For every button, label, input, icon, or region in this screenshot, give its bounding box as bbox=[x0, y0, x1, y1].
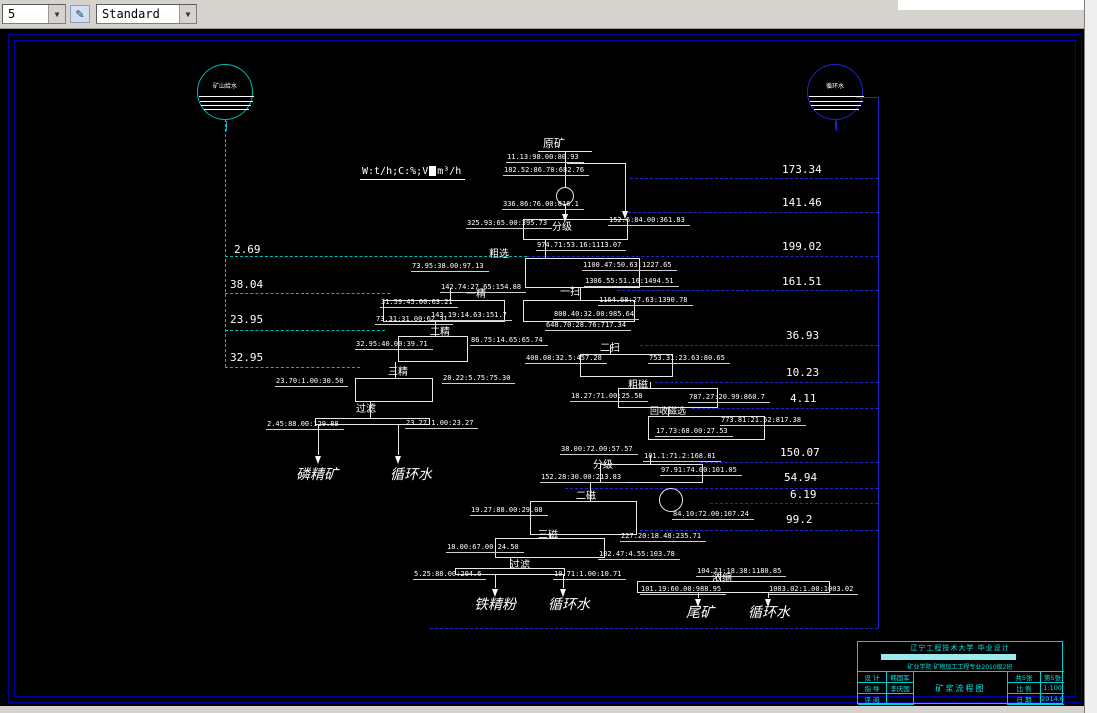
stream-annotation: 1306.55:51.16:1494.51 bbox=[584, 277, 679, 287]
water-flow-value: 23.95 bbox=[230, 314, 263, 326]
flow-line bbox=[640, 530, 878, 531]
product-label: 磷精矿 bbox=[296, 468, 338, 483]
flow-line bbox=[225, 256, 527, 257]
flow-line bbox=[710, 503, 878, 504]
stream-annotation: 73.95:38.00:97.13 bbox=[411, 262, 489, 272]
tb-value-scale: 1:100 bbox=[1041, 683, 1064, 694]
stream-annotation: 787.27:20.99:860.7 bbox=[688, 393, 770, 403]
stream-annotation: 18.27:71.00:25.58 bbox=[570, 392, 648, 402]
stream-annotation: 97.91:74.00:101.05 bbox=[660, 466, 742, 476]
water-tank: 矿山给水 bbox=[197, 64, 253, 120]
title-block: 辽宁工程技术大学 毕业设计 矿业学院 矿物加工工程专业2010级2班 设 计 韩… bbox=[857, 641, 1063, 704]
stream-annotation: 11.13:98.00:80.93 bbox=[506, 153, 584, 163]
product-label: 铁精粉 bbox=[474, 598, 516, 613]
water-flow-value: 199.02 bbox=[782, 241, 822, 253]
stream-annotation: 974.71:53.16:1113.07 bbox=[536, 241, 626, 251]
legend-prefix: W:t/h;C:%;V bbox=[362, 166, 428, 177]
water-tank: 循环水 bbox=[807, 64, 863, 120]
flow-line bbox=[655, 382, 878, 383]
product-label: 循环水 bbox=[390, 468, 432, 483]
equipment-label: 二扫 bbox=[600, 343, 620, 354]
stream-annotation: 23.70:1.00:30.50 bbox=[275, 377, 348, 387]
stream-annotation: 101.19:60.00:988.95 bbox=[640, 585, 726, 595]
stream-annotation: 17.73:68.00:27.53 bbox=[655, 427, 733, 437]
flow-line bbox=[225, 330, 385, 331]
flow-arrow-icon bbox=[492, 589, 498, 597]
flowsheet-diagram: 矿山给水循环水11.13:98.00:80.93182.52:86.70:682… bbox=[0, 0, 1084, 713]
flow-line bbox=[630, 178, 878, 179]
water-flow-value: 4.11 bbox=[790, 393, 817, 405]
equipment-label: 粗磁 bbox=[628, 380, 648, 391]
flow-line bbox=[640, 345, 878, 346]
status-strip bbox=[0, 706, 1084, 713]
equipment-label: 一扫 bbox=[560, 287, 580, 298]
equipment-label: 一精 bbox=[466, 289, 486, 300]
tank-water-line bbox=[809, 96, 864, 97]
stream-annotation: 143.19:14.63:151.7 bbox=[430, 311, 512, 321]
tank-water-line bbox=[200, 101, 253, 102]
water-flow-value: 141.46 bbox=[782, 197, 822, 209]
title-block-department: 矿业学院 矿物加工工程专业2010级2班 bbox=[858, 662, 1062, 671]
flow-line bbox=[700, 462, 878, 463]
stream-annotation: 336.86:76.00:816.1 bbox=[502, 200, 584, 210]
equipment-box bbox=[355, 378, 433, 402]
stream-annotation: 1003.02:1.00:1003.02 bbox=[768, 585, 858, 595]
tb-value-design: 韩国军 bbox=[887, 672, 914, 683]
tank-water-line bbox=[811, 105, 861, 106]
flow-line bbox=[565, 488, 878, 489]
equipment-label: 二磁 bbox=[576, 491, 596, 502]
stream-annotation: 408.08:32.5:457.28 bbox=[525, 354, 607, 364]
tb-label-date: 日 期 bbox=[1008, 694, 1041, 705]
water-flow-value: 150.07 bbox=[780, 447, 820, 459]
stream-annotation: 84.10:72.00:107.24 bbox=[672, 510, 754, 520]
flow-line bbox=[878, 97, 879, 628]
stream-annotation: 1164.68:27.63:1390.78 bbox=[598, 296, 693, 306]
title-block-highlight-bar bbox=[881, 654, 1016, 660]
equipment-label: 过滤 bbox=[356, 404, 376, 415]
stream-annotation: 38.00:72.00:57.57 bbox=[560, 445, 638, 455]
water-flow-value: 6.19 bbox=[790, 489, 817, 501]
flow-arrow-icon bbox=[562, 214, 568, 222]
equipment-label: 三磁 bbox=[538, 530, 558, 541]
tb-label-review: 评 阅 bbox=[858, 694, 887, 705]
tb-label-advisor: 指 导 bbox=[858, 683, 887, 694]
flow-line bbox=[225, 293, 390, 294]
stream-annotation: 152.28:30.00:213.83 bbox=[540, 473, 626, 483]
stream-annotation: 31.59:45.00:63.21 bbox=[380, 298, 458, 308]
water-flow-value: 10.23 bbox=[786, 367, 819, 379]
equipment-label: 分级 bbox=[593, 460, 613, 471]
equipment-label: 原矿 bbox=[543, 138, 565, 149]
product-label: 循环水 bbox=[748, 606, 790, 621]
title-block-university: 辽宁工程技术大学 毕业设计 bbox=[858, 643, 1062, 653]
flow-line bbox=[567, 163, 625, 164]
flow-line bbox=[617, 290, 878, 291]
stream-annotation: 773.81:21.52:817.38 bbox=[720, 416, 806, 426]
pump-circle bbox=[659, 488, 683, 512]
equipment-label: 回收磁选 bbox=[650, 407, 686, 418]
drawing-canvas[interactable]: 矿山给水循环水11.13:98.00:80.93182.52:86.70:682… bbox=[0, 29, 1084, 706]
flow-line bbox=[527, 256, 878, 257]
title-block-table: 设 计 韩国军 指 导 李庆国 评 阅 矿浆流程图 共5张 第5张 比 例 1:… bbox=[858, 671, 1064, 705]
tb-value-date: 2014.6 bbox=[1041, 694, 1064, 705]
tb-sheets-total: 共5张 bbox=[1008, 672, 1041, 683]
drawing-title: 矿浆流程图 bbox=[914, 672, 1008, 705]
equipment-label: 浓缩 bbox=[712, 573, 732, 584]
tank-water-line bbox=[814, 109, 859, 110]
equipment-label: 过滤 bbox=[510, 560, 530, 571]
water-flow-value: 36.93 bbox=[786, 330, 819, 342]
legend-suffix: m³/h bbox=[437, 166, 461, 177]
water-flow-value: 32.95 bbox=[230, 352, 263, 364]
flow-line bbox=[225, 367, 360, 368]
product-label: 循环水 bbox=[548, 598, 590, 613]
stream-annotation: 28.22:5.75:75.30 bbox=[442, 374, 515, 384]
equipment-label: 粗选 bbox=[489, 249, 509, 260]
tank-label: 循环水 bbox=[808, 81, 862, 90]
equipment-label: 分级 bbox=[552, 222, 572, 233]
water-flow-value: 173.34 bbox=[782, 164, 822, 176]
stream-annotation: 104.21:18.38:1180.85 bbox=[696, 567, 786, 577]
stream-annotation: 325.93:65.00:395.73 bbox=[466, 219, 552, 229]
stream-annotation: 19.27:88.00:29.08 bbox=[470, 506, 548, 516]
product-label: 尾矿 bbox=[686, 606, 714, 621]
stream-annotation: 1100.47:50.63:1227.65 bbox=[582, 261, 677, 271]
stream-annotation: 808.40:32.00:985.64 bbox=[553, 310, 639, 320]
stream-annotation: 32.95:40.00:39.71 bbox=[355, 340, 433, 350]
stream-annotation: 227.20:18.48:235.71 bbox=[620, 532, 706, 542]
tb-sheet-number: 第5张 bbox=[1041, 672, 1064, 683]
water-flow-value: 99.2 bbox=[786, 514, 813, 526]
flow-arrow-icon bbox=[315, 456, 321, 464]
stream-annotation: 753.31:23.63:80.65 bbox=[648, 354, 730, 364]
water-flow-value: 38.04 bbox=[230, 279, 263, 291]
stream-annotation: 101.1:71.2:168.81 bbox=[643, 452, 721, 462]
tank-stem bbox=[836, 121, 837, 131]
water-flow-value: 161.51 bbox=[782, 276, 822, 288]
water-flow-value: 54.94 bbox=[784, 472, 817, 484]
tank-water-line bbox=[201, 105, 251, 106]
equipment-label: 三精 bbox=[388, 367, 408, 378]
tb-value-advisor: 李庆国 bbox=[887, 683, 914, 694]
stream-annotation: 5.25:88.00:204.6 bbox=[413, 570, 486, 580]
stream-annotation: 2.45:88.00:129.88 bbox=[266, 420, 344, 430]
tb-label-scale: 比 例 bbox=[1008, 683, 1041, 694]
flow-line bbox=[692, 408, 878, 409]
tank-stem bbox=[226, 121, 227, 131]
tb-value-review bbox=[887, 694, 914, 705]
flow-line bbox=[628, 212, 878, 213]
stream-annotation: 10.71:1.00:10.71 bbox=[553, 570, 626, 580]
flow-line bbox=[625, 163, 626, 212]
flow-line bbox=[580, 288, 581, 300]
tank-label: 矿山给水 bbox=[198, 81, 252, 90]
stream-annotation: 86.75:14.65:65.74 bbox=[470, 336, 548, 346]
water-flow-value: 2.69 bbox=[234, 244, 261, 256]
equipment-label: 二精 bbox=[430, 327, 450, 338]
tank-water-line bbox=[199, 96, 254, 97]
tank-water-line bbox=[204, 109, 249, 110]
flow-line bbox=[398, 425, 399, 455]
tank-water-line bbox=[810, 101, 863, 102]
text-cursor bbox=[429, 166, 436, 176]
stream-annotation: 23.27:1.00:23.27 bbox=[405, 419, 478, 429]
flow-arrow-icon bbox=[395, 456, 401, 464]
stream-annotation: 152.6:84.00:361.83 bbox=[608, 216, 690, 226]
units-legend: W:t/h;C:%;Vm³/h bbox=[360, 166, 465, 180]
stream-annotation: 182.52:86.70:682.76 bbox=[503, 166, 589, 176]
stream-annotation: 648.70:28.76:717.34 bbox=[545, 321, 631, 331]
flow-arrow-icon bbox=[560, 589, 566, 597]
tb-label-design: 设 计 bbox=[858, 672, 887, 683]
flow-line bbox=[495, 575, 496, 588]
right-scrollbar-strip[interactable] bbox=[1084, 0, 1097, 713]
flow-line bbox=[430, 628, 878, 629]
stream-annotation: 102.47:4.55:103.78 bbox=[598, 550, 680, 560]
stream-annotation: 18.00:67.00:24.50 bbox=[446, 543, 524, 553]
